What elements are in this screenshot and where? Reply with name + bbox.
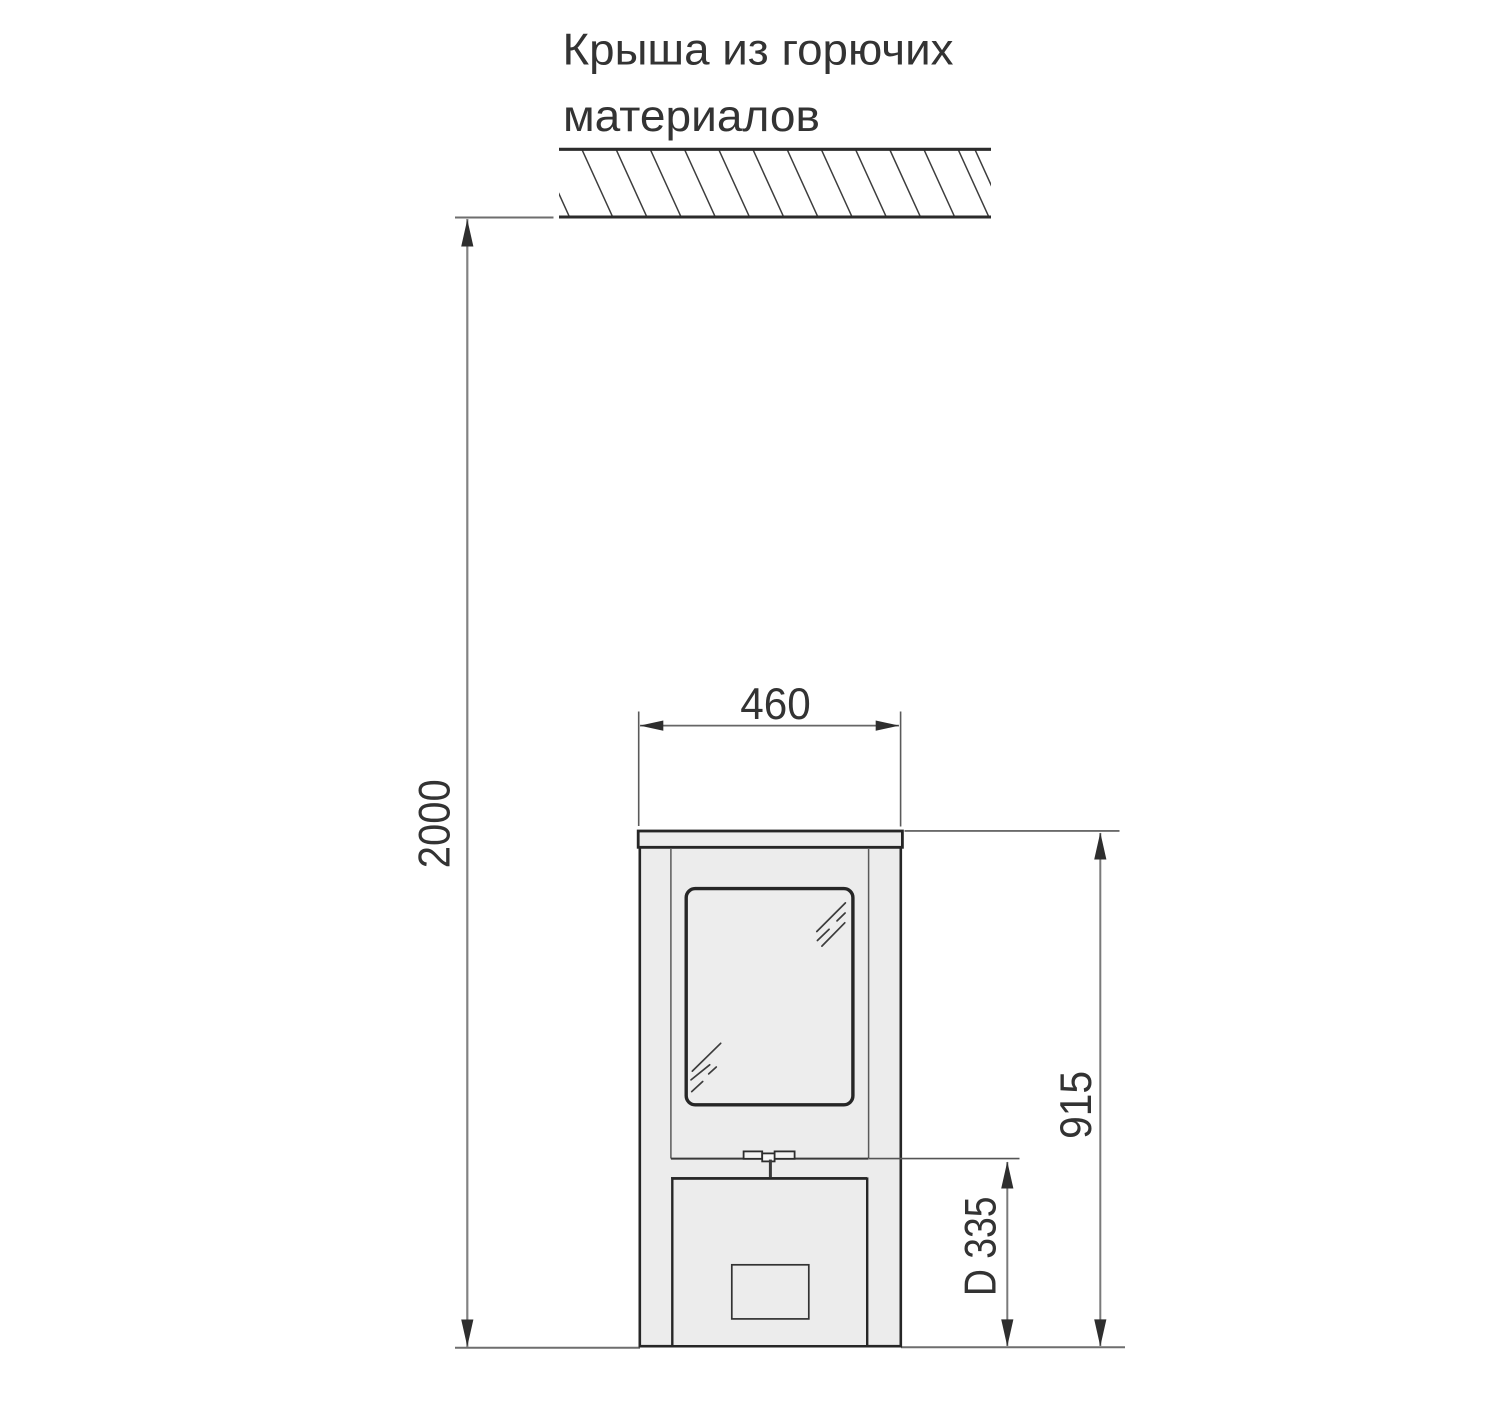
svg-text:2000: 2000 [410, 779, 459, 868]
svg-text:460: 460 [740, 680, 811, 729]
svg-text:Крыша из горючих: Крыша из горючих [563, 26, 954, 75]
svg-text:915: 915 [1052, 1071, 1101, 1139]
svg-text:D 335: D 335 [957, 1197, 1006, 1297]
svg-text:материалов: материалов [563, 92, 820, 141]
